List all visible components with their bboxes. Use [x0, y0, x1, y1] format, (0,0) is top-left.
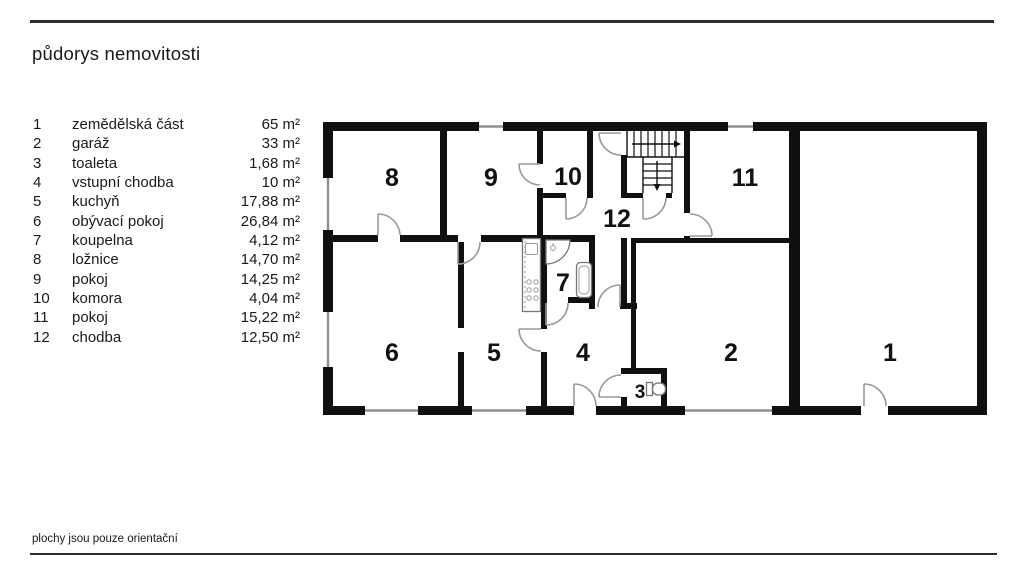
door-room10-hall — [566, 198, 587, 219]
wall-10-east — [587, 131, 593, 198]
wall-room2-top — [631, 238, 789, 243]
room-label-2: 2 — [724, 339, 738, 367]
door-room8 — [378, 214, 400, 235]
room-label-11: 11 — [732, 164, 759, 192]
door-entrance-room4 — [574, 384, 596, 406]
room-label-1: 1 — [883, 339, 897, 367]
wall-house-barn — [789, 131, 800, 406]
wall-6-5 — [458, 242, 464, 328]
wall-stair-west — [621, 155, 627, 198]
bottom-divider-line — [30, 553, 997, 555]
room-label-7: 7 — [556, 269, 570, 297]
bathroom-sink — [546, 240, 570, 264]
room-label-3: 3 — [635, 382, 646, 403]
footer-note: plochy jsou pouze orientační — [32, 533, 178, 545]
room-label-8: 8 — [385, 164, 399, 192]
floorplan-page: { "title": "půdorys nemovitosti", "foote… — [0, 0, 1024, 576]
wall-8-9 — [440, 131, 447, 238]
door-entrance-room1 — [864, 384, 886, 406]
toilet-fixture — [647, 383, 666, 396]
room-label-9: 9 — [484, 164, 498, 192]
room-label-4: 4 — [576, 339, 590, 367]
door-bathroom — [546, 303, 568, 325]
bathtub — [577, 263, 592, 298]
door-toilet — [599, 375, 621, 397]
door-hall-room11 — [690, 214, 712, 236]
door-room5-room4 — [519, 329, 541, 351]
wall-toilet-top — [621, 368, 667, 374]
door-hall-room4 — [598, 285, 620, 307]
floorplan-drawing: 1 2 3 4 5 6 7 8 9 10 11 12 — [0, 0, 1024, 576]
kitchen-counter — [523, 239, 541, 312]
door-stair-bottom — [643, 198, 666, 219]
door-stair-top — [599, 133, 621, 155]
room-label-10: 10 — [554, 163, 582, 191]
room-label-5: 5 — [487, 339, 501, 367]
room-label-6: 6 — [385, 339, 399, 367]
room-label-12: 12 — [603, 205, 631, 233]
wall-12-11 — [684, 131, 690, 213]
door-room9-room10 — [519, 164, 540, 185]
staircase — [627, 131, 684, 193]
